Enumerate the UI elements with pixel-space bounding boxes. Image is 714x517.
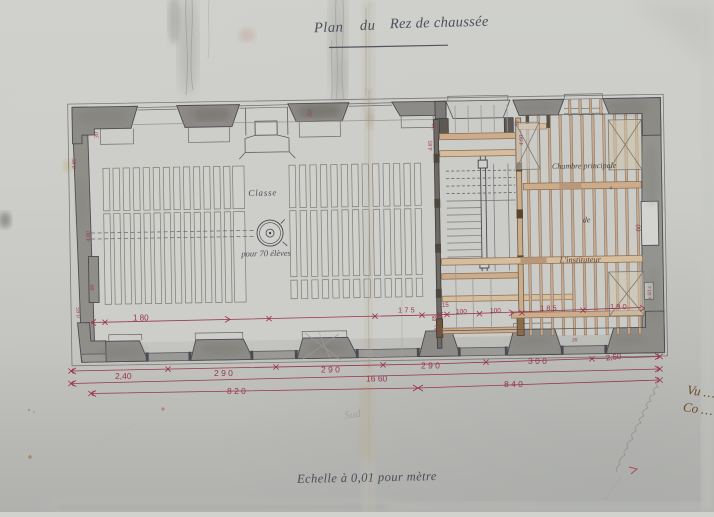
svg-text:1 8 5: 1 8 5 <box>540 304 557 313</box>
svg-text:2 9 0: 2 9 0 <box>421 361 440 371</box>
svg-text:1 80: 1 80 <box>133 314 149 323</box>
svg-text:4.85: 4.85 <box>427 140 434 151</box>
svg-text:Plan: Plan <box>313 19 344 36</box>
svg-text:0.85: 0.85 <box>72 158 78 169</box>
svg-text:1 9 0: 1 9 0 <box>610 302 627 311</box>
svg-text:30: 30 <box>571 338 578 344</box>
svg-text:8 2 0: 8 2 0 <box>227 386 246 396</box>
svg-text:du: du <box>360 18 376 34</box>
svg-text:3 0 0: 3 0 0 <box>528 356 547 366</box>
svg-text:4.80: 4.80 <box>85 231 92 242</box>
svg-text:2 9 0: 2 9 0 <box>214 368 233 378</box>
svg-text:15: 15 <box>442 303 449 309</box>
svg-text:4.60: 4.60 <box>518 135 525 146</box>
svg-text:Rez de chaussée: Rez de chaussée <box>389 14 489 33</box>
svg-text:L'instituteur: L'instituteur <box>558 254 601 265</box>
svg-text:2 9 0: 2 9 0 <box>321 365 340 375</box>
svg-text:Chambre principale: Chambre principale <box>552 161 617 171</box>
svg-text:30: 30 <box>93 131 100 139</box>
svg-text:30: 30 <box>515 120 521 127</box>
svg-text:60: 60 <box>634 224 642 232</box>
svg-text:Echelle à 0,01 pour mètre: Echelle à 0,01 pour mètre <box>296 469 437 486</box>
svg-text:2,50: 2,50 <box>605 352 622 363</box>
svg-text:Classe: Classe <box>248 187 277 197</box>
svg-text:8 4 0: 8 4 0 <box>504 379 523 389</box>
svg-text:60: 60 <box>90 284 96 290</box>
svg-text:Sud: Sud <box>344 408 363 422</box>
svg-text:2,40: 2,40 <box>115 371 132 381</box>
svg-text:1 7 5: 1 7 5 <box>398 306 415 315</box>
svg-text:de: de <box>583 215 591 224</box>
svg-text:100: 100 <box>490 308 501 315</box>
svg-text:pour 70 élèves: pour 70 élèves <box>240 248 291 259</box>
svg-text:85: 85 <box>432 315 438 321</box>
svg-text:16 60: 16 60 <box>366 374 388 384</box>
svg-text:100: 100 <box>456 309 467 316</box>
svg-text:0.85: 0.85 <box>76 307 82 318</box>
svg-text:30: 30 <box>432 124 438 131</box>
